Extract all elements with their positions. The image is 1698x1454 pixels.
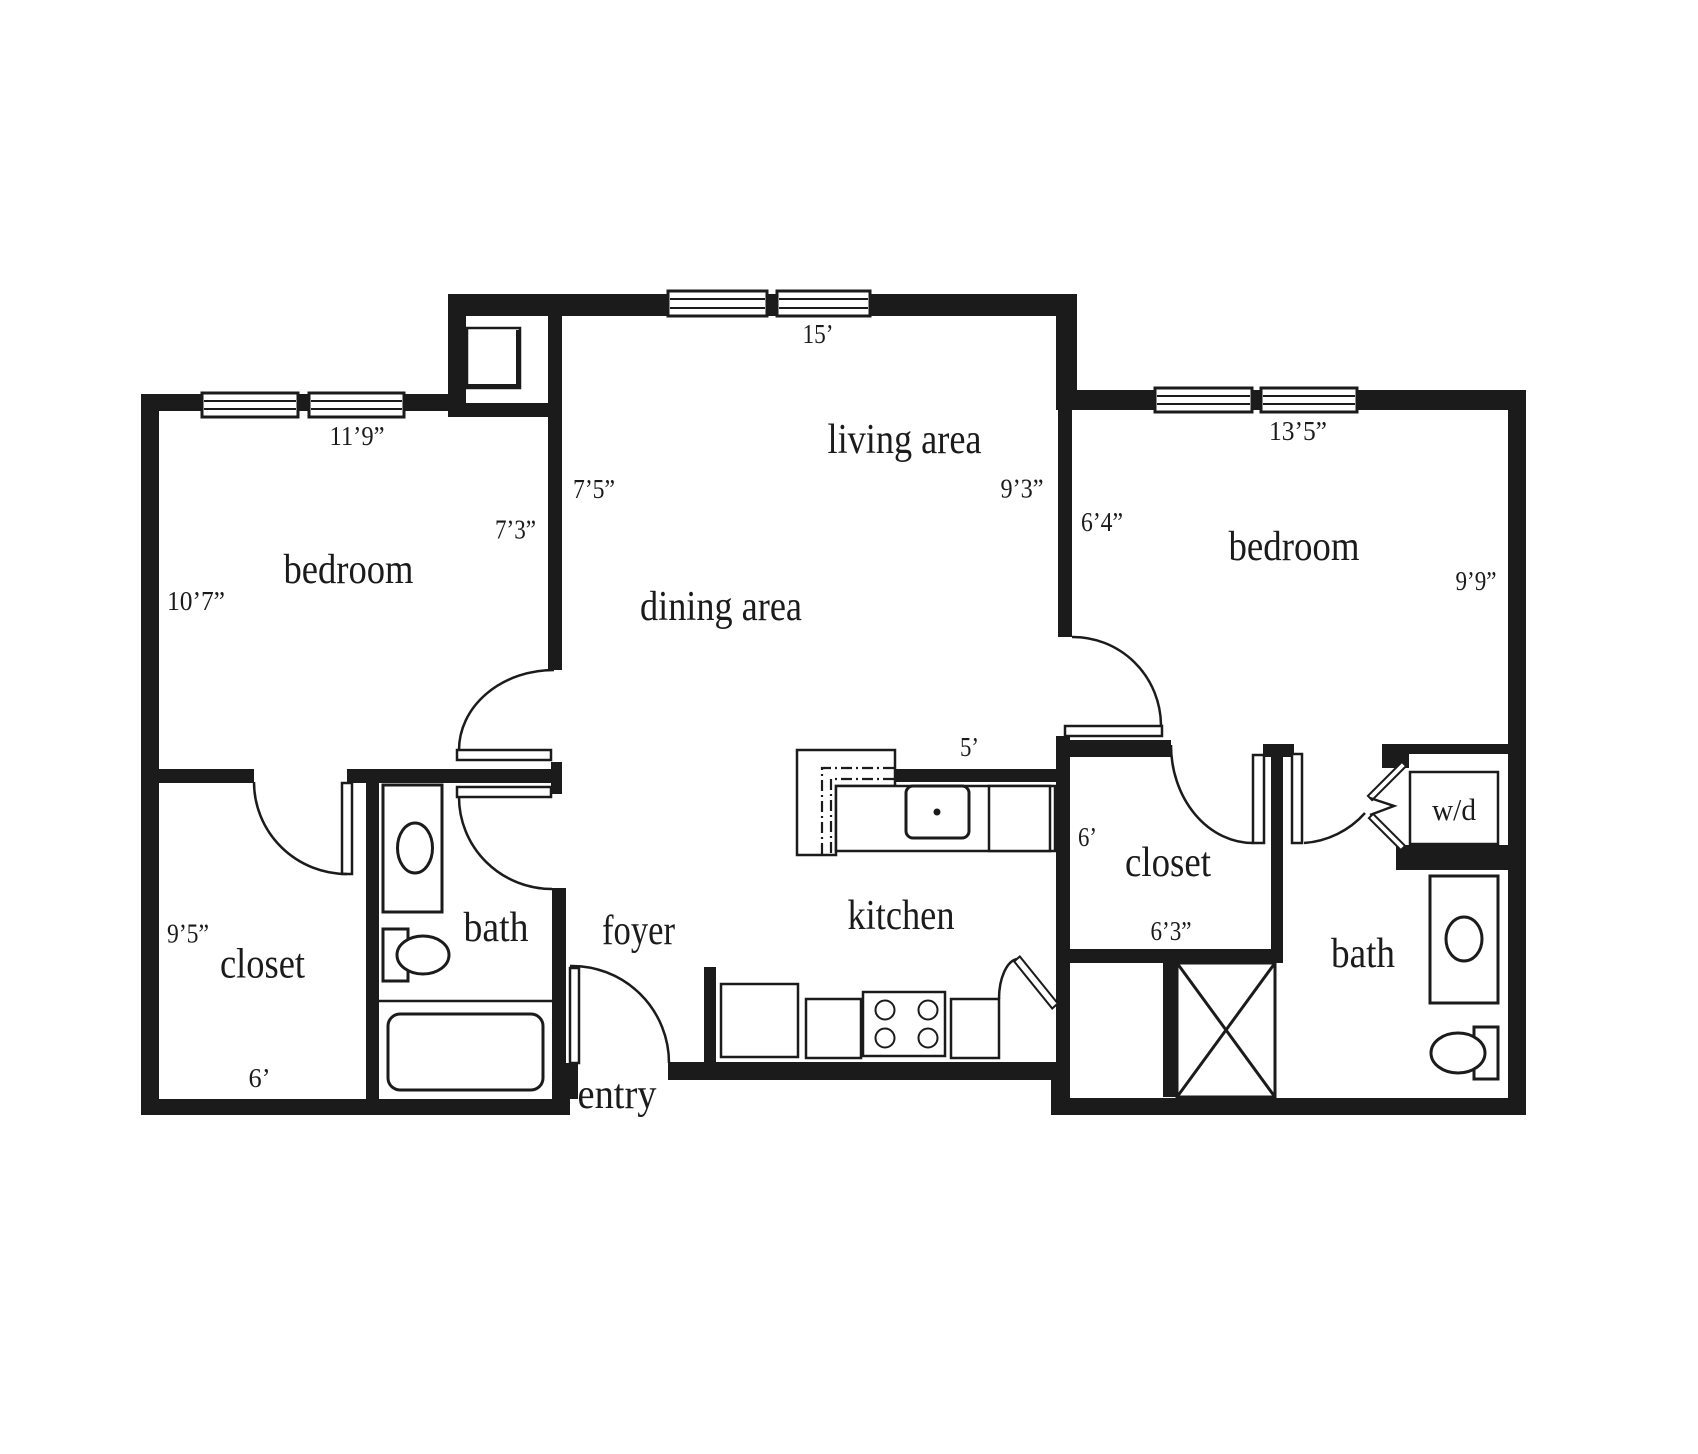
svg-text:bath: bath bbox=[464, 905, 529, 951]
svg-text:foyer: foyer bbox=[602, 908, 675, 954]
svg-text:bedroom: bedroom bbox=[284, 547, 414, 593]
svg-text:6’: 6’ bbox=[1078, 822, 1097, 852]
svg-text:9’3”: 9’3” bbox=[1001, 474, 1044, 504]
svg-text:w/d: w/d bbox=[1432, 792, 1476, 827]
svg-text:entry: entry bbox=[578, 1072, 657, 1118]
svg-text:11’9”: 11’9” bbox=[330, 421, 385, 451]
svg-text:living area: living area bbox=[828, 417, 982, 463]
svg-text:15’: 15’ bbox=[803, 319, 834, 349]
svg-text:closet: closet bbox=[220, 942, 305, 988]
svg-text:bedroom: bedroom bbox=[1229, 524, 1360, 570]
svg-text:9’9”: 9’9” bbox=[1456, 566, 1497, 596]
svg-text:7’5”: 7’5” bbox=[573, 474, 615, 504]
svg-text:closet: closet bbox=[1125, 840, 1211, 886]
svg-text:dining area: dining area bbox=[640, 584, 802, 630]
svg-text:6’4”: 6’4” bbox=[1081, 507, 1123, 537]
svg-text:6’3”: 6’3” bbox=[1151, 916, 1192, 946]
svg-text:13’5”: 13’5” bbox=[1269, 416, 1327, 446]
svg-text:6’: 6’ bbox=[249, 1063, 271, 1093]
svg-text:kitchen: kitchen bbox=[848, 893, 955, 939]
svg-text:9’5”: 9’5” bbox=[167, 919, 209, 949]
svg-text:bath: bath bbox=[1331, 931, 1395, 977]
svg-text:10’7”: 10’7” bbox=[167, 586, 225, 616]
svg-text:5’: 5’ bbox=[960, 732, 979, 762]
svg-text:7’3”: 7’3” bbox=[495, 515, 536, 545]
